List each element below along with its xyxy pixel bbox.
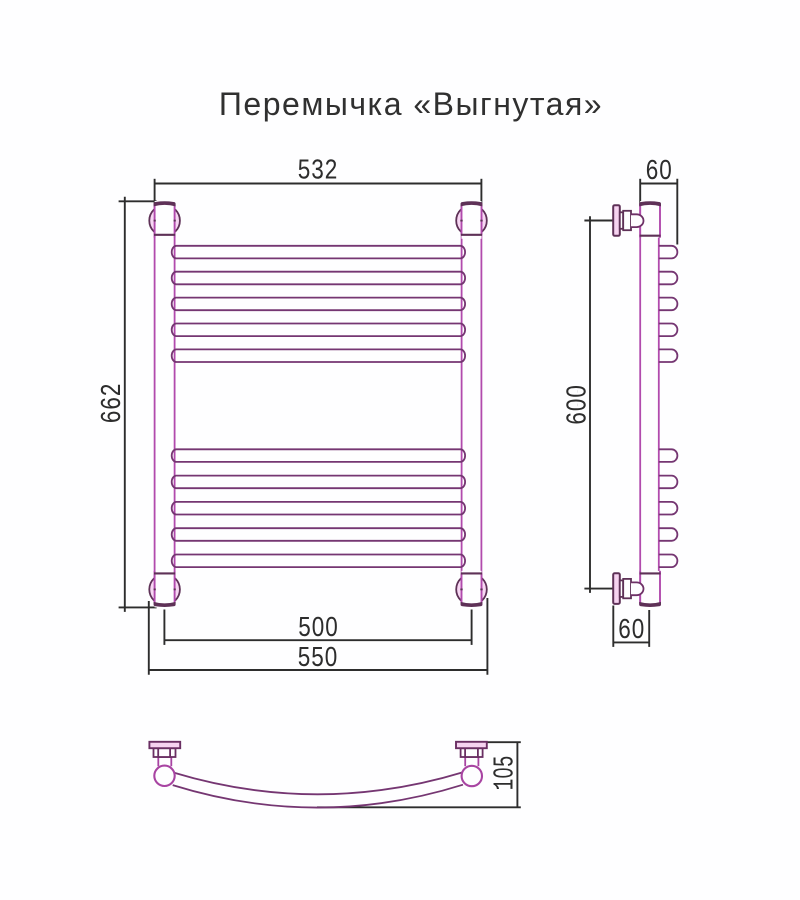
svg-text:532: 532 <box>297 155 338 187</box>
svg-text:60: 60 <box>645 156 672 188</box>
svg-text:60: 60 <box>618 615 645 647</box>
svg-text:Перемычка «Выгнутая»: Перемычка «Выгнутая» <box>219 86 603 122</box>
svg-text:600: 600 <box>562 385 594 426</box>
svg-text:662: 662 <box>97 383 129 424</box>
